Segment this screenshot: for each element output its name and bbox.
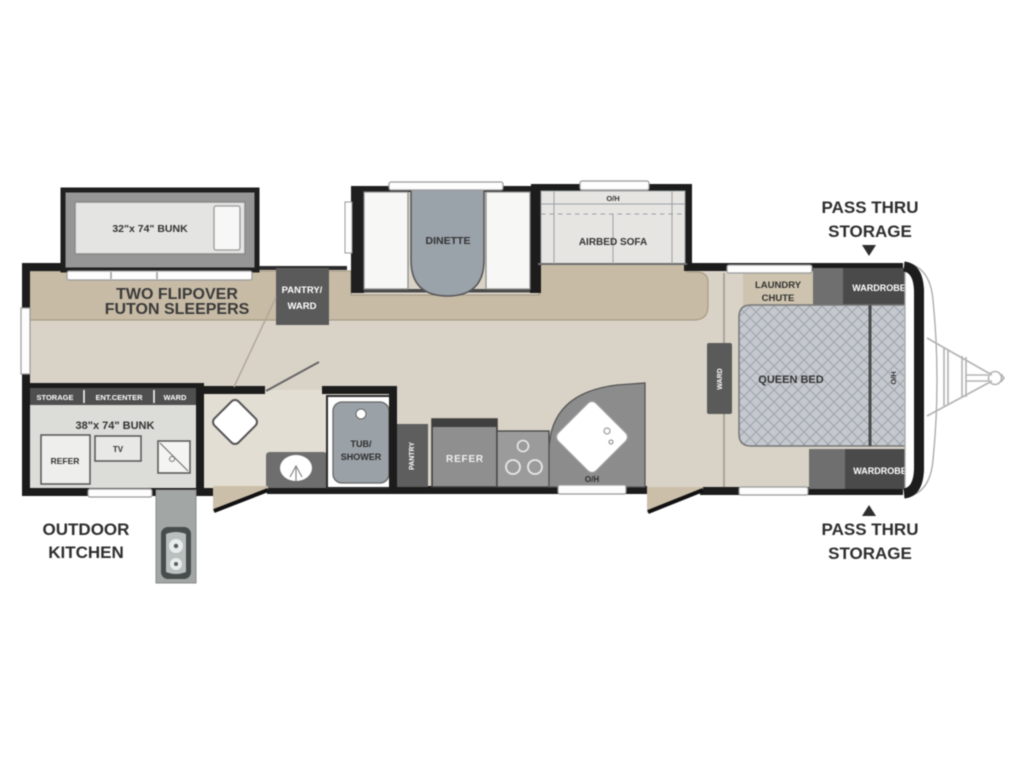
svg-text:WARD: WARD: [717, 368, 724, 389]
svg-text:PASS THRU: PASS THRU: [822, 198, 919, 217]
svg-text:STORAGE: STORAGE: [37, 393, 74, 402]
svg-text:PANTRY: PANTRY: [409, 442, 416, 470]
svg-text:CHUTE: CHUTE: [762, 293, 795, 304]
svg-text:STORAGE: STORAGE: [828, 544, 912, 563]
svg-text:TUB/: TUB/: [351, 439, 372, 449]
svg-text:OUTDOOR: OUTDOOR: [43, 520, 130, 539]
svg-text:WARD: WARD: [164, 393, 187, 402]
svg-text:TV: TV: [113, 445, 124, 454]
svg-text:38"x 74" BUNK: 38"x 74" BUNK: [76, 420, 155, 432]
svg-text:WARDROBE: WARDROBE: [853, 466, 907, 476]
svg-text:REFER: REFER: [446, 454, 484, 465]
svg-text:SHOWER: SHOWER: [341, 452, 382, 462]
svg-text:32"x 74" BUNK: 32"x 74" BUNK: [112, 223, 188, 235]
svg-text:O/H: O/H: [585, 475, 599, 484]
svg-text:DINETTE: DINETTE: [426, 235, 471, 247]
svg-text:REFER: REFER: [51, 456, 80, 466]
svg-text:WARD: WARD: [287, 301, 316, 312]
svg-text:PANTRY/: PANTRY/: [282, 285, 323, 296]
svg-text:PASS THRU: PASS THRU: [822, 520, 919, 539]
svg-text:O/H: O/H: [889, 371, 898, 384]
svg-text:AIRBED SOFA: AIRBED SOFA: [579, 237, 647, 248]
svg-text:STORAGE: STORAGE: [828, 222, 912, 241]
svg-text:WARDROBE: WARDROBE: [852, 283, 906, 293]
svg-text:KITCHEN: KITCHEN: [48, 543, 124, 562]
svg-text:O/H: O/H: [606, 194, 619, 203]
svg-text:QUEEN BED: QUEEN BED: [758, 374, 823, 386]
svg-text:LAUNDRY: LAUNDRY: [755, 280, 802, 291]
svg-text:ENT.CENTER: ENT.CENTER: [95, 393, 143, 402]
svg-text:FUTON SLEEPERS: FUTON SLEEPERS: [105, 301, 250, 318]
